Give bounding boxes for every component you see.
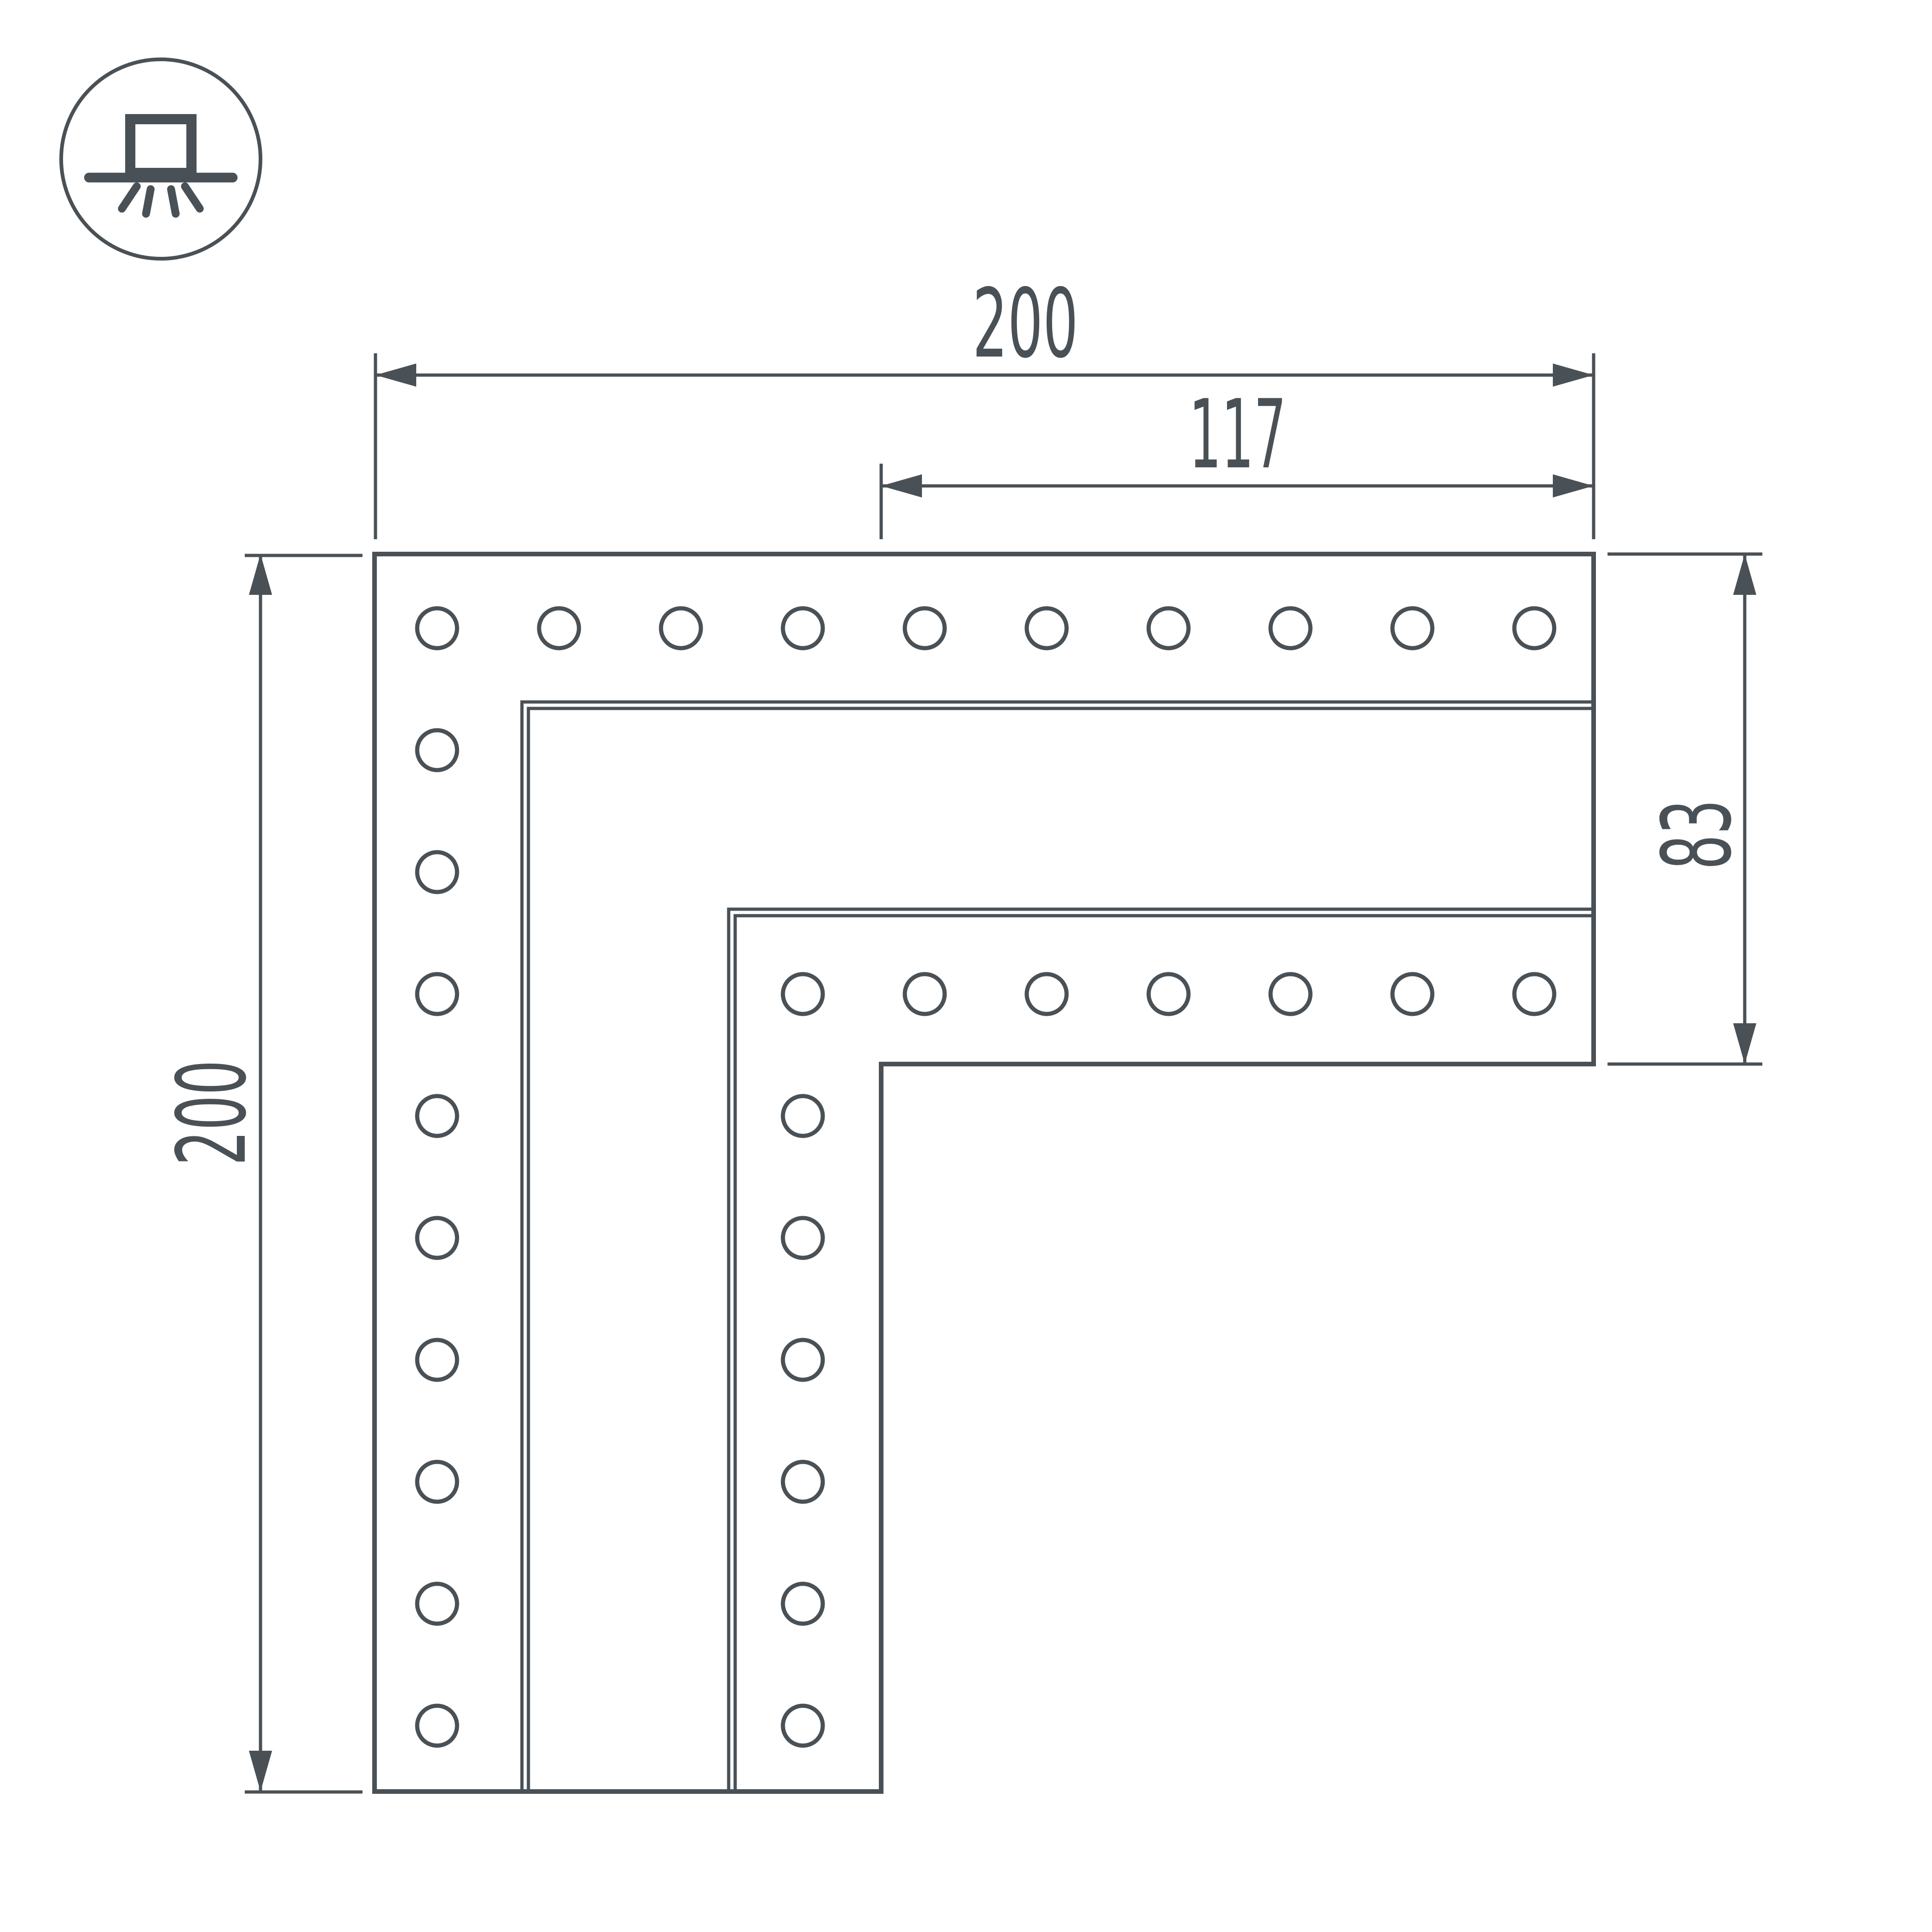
light-ray-icon: [171, 189, 176, 214]
light-ray-icon: [146, 189, 151, 214]
dim-label-leg-height: 83: [1642, 799, 1753, 870]
dim-arrow-leg-height-1: [1733, 1023, 1756, 1064]
light-fixture-box-icon: [130, 119, 191, 173]
dim-arrow-overall-height-1: [249, 1751, 272, 1792]
dim-arrow-overall-width-0: [375, 363, 416, 387]
dim-arrow-overall-height-0: [249, 554, 272, 595]
dim-label-overall-width: 200: [972, 269, 1078, 379]
surface-mount-light-icon: [61, 59, 261, 259]
drawing-page: 20011720083: [0, 0, 1932, 1932]
dim-arrow-overall-width-1: [1553, 363, 1594, 387]
dim-arrow-inner-width-1: [1553, 474, 1594, 497]
dim-label-overall-height: 200: [157, 1060, 267, 1166]
part-outline: [375, 554, 1594, 1792]
light-ray-icon: [122, 186, 137, 209]
dim-arrow-leg-height-0: [1733, 554, 1756, 595]
light-ray-icon: [185, 186, 200, 209]
dim-arrow-inner-width-0: [881, 474, 922, 497]
technical-drawing: 20011720083: [0, 0, 1932, 1932]
dim-label-inner-width: 117: [1189, 380, 1286, 490]
